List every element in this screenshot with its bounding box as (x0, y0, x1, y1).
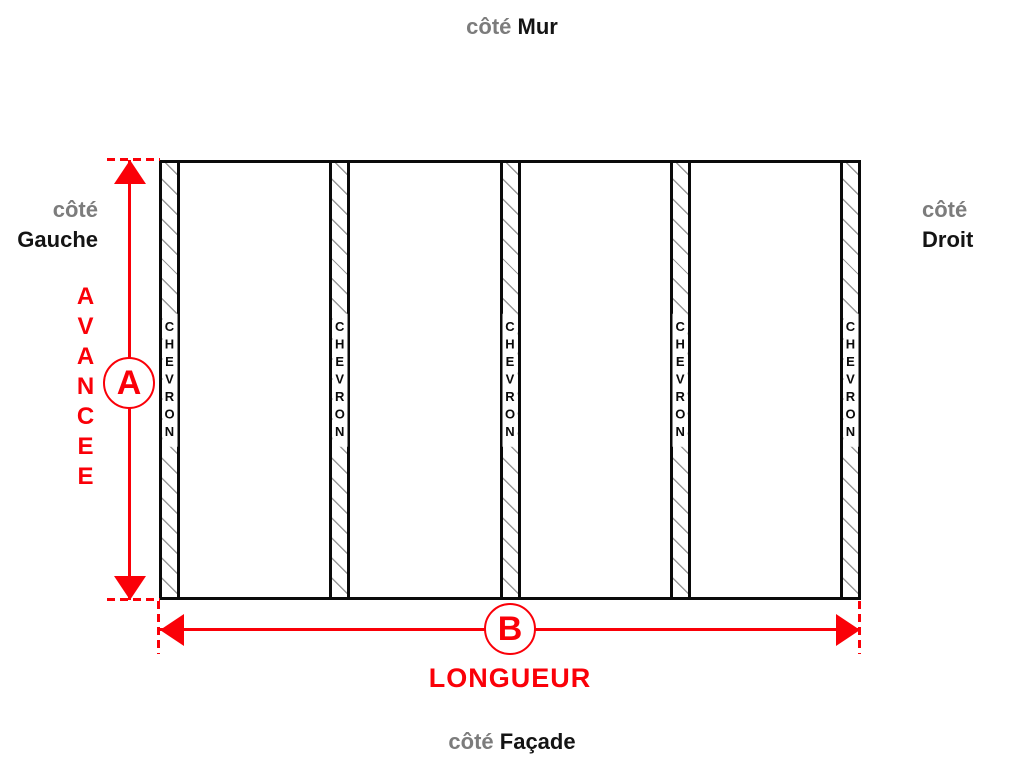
dim-a-arrowhead-down-icon (114, 576, 146, 600)
chevron-bar-5: CHEVRON (840, 163, 861, 597)
side-label-facade-name: Façade (500, 729, 576, 754)
chevron-bar-label: CHEVRON (332, 314, 347, 447)
avancee-vertical-label: AVANCEE (72, 283, 98, 493)
side-label-gauche-name: Gauche (0, 225, 98, 255)
side-label-droit-name: Droit (922, 225, 1024, 255)
side-label-droit-prefix: côté (922, 195, 1024, 225)
dim-a-arrowhead-up-icon (114, 160, 146, 184)
dim-a-symbol: A (117, 364, 142, 403)
dim-b-symbol: B (498, 610, 523, 649)
chevron-bar-1: CHEVRON (159, 163, 180, 597)
side-label-mur: côté Mur (0, 14, 1024, 40)
side-label-gauche: côté Gauche (0, 195, 98, 255)
pergola-dimension-diagram: côté Mur côté Gauche côté Droit côté Faç… (0, 0, 1024, 768)
side-label-facade: côté Façade (0, 729, 1024, 755)
roof-structure: CHEVRON CHEVRON CHEVRON CHEVRON CHEVRON (159, 160, 861, 600)
longueur-label: LONGUEUR (159, 663, 861, 694)
dim-a-circle: A (103, 357, 155, 409)
dim-b-arrowhead-left-icon (160, 614, 184, 646)
dim-b-arrowhead-right-icon (836, 614, 860, 646)
chevron-bar-2: CHEVRON (329, 163, 350, 597)
chevron-bar-label: CHEVRON (162, 314, 177, 447)
side-label-droit: côté Droit (922, 195, 1024, 255)
dim-b-circle: B (484, 603, 536, 655)
chevron-bar-4: CHEVRON (670, 163, 691, 597)
side-label-facade-prefix: côté (448, 729, 493, 754)
chevron-bar-label: CHEVRON (843, 314, 858, 447)
side-label-gauche-prefix: côté (0, 195, 98, 225)
chevron-bar-label: CHEVRON (673, 314, 688, 447)
side-label-mur-name: Mur (518, 14, 558, 39)
chevron-bar-3: CHEVRON (500, 163, 521, 597)
side-label-mur-prefix: côté (466, 14, 511, 39)
chevron-bar-label: CHEVRON (503, 314, 518, 447)
